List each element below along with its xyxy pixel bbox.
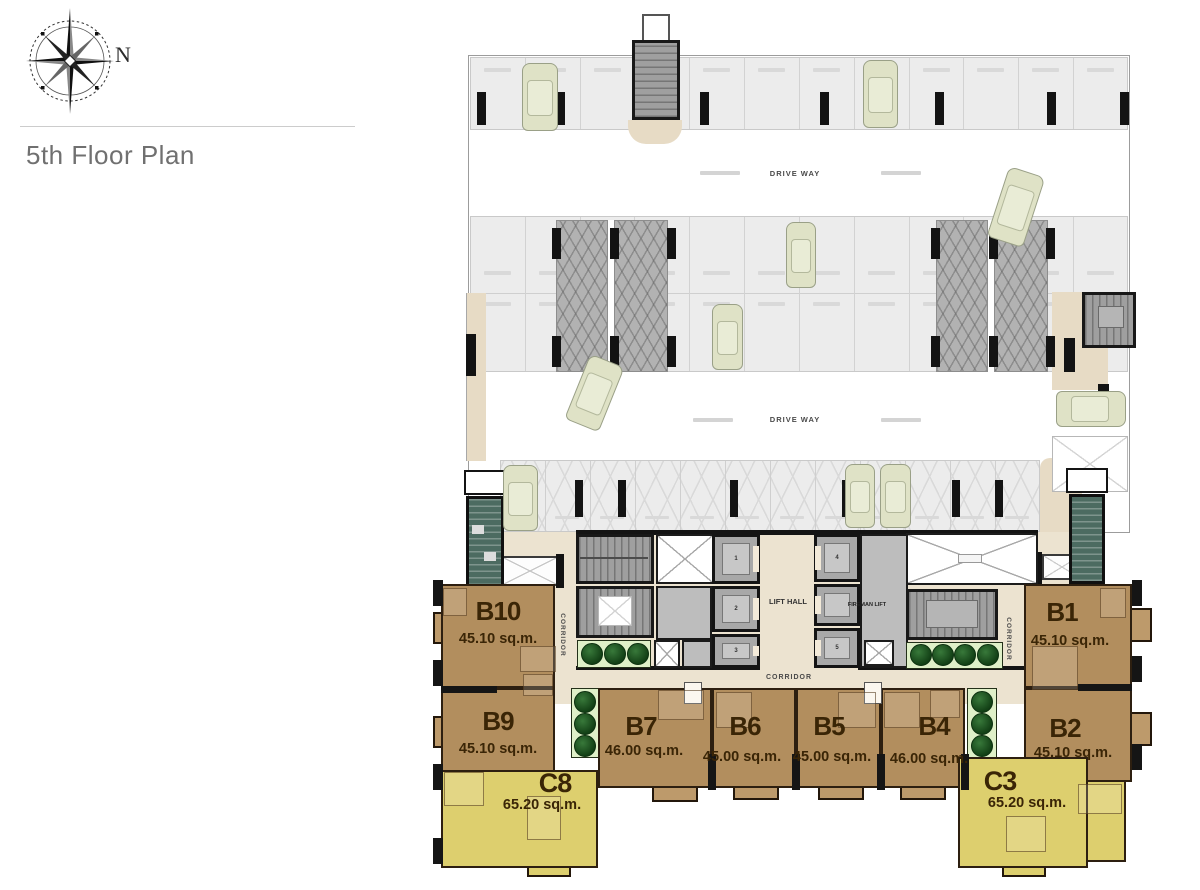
- unit-name: B2: [1025, 714, 1105, 742]
- stall-mark: [758, 302, 785, 306]
- column: [552, 228, 561, 259]
- shaft: [864, 640, 894, 666]
- parking-ramp: [614, 220, 668, 372]
- car: [880, 464, 911, 528]
- stall-mark: [594, 68, 621, 72]
- car-roof: [1071, 396, 1109, 422]
- car-roof: [717, 321, 738, 355]
- furniture: [444, 772, 484, 806]
- car: [845, 464, 875, 528]
- unit-area: 65.20 sq.m.: [488, 796, 596, 813]
- unit-name: B5: [790, 712, 868, 740]
- parking-ramp: [936, 220, 988, 372]
- stall-mark: [868, 271, 895, 275]
- stall-mark: [813, 68, 840, 72]
- stall-mark: [484, 302, 511, 306]
- fireman-lift-label: FIREMAN LIFT: [847, 592, 887, 618]
- lift-door: [753, 646, 759, 656]
- column: [935, 92, 944, 125]
- column: [552, 336, 561, 367]
- floor-plan: 12345B1045.10 sq.m.B945.10 sq.m.C865.20 …: [0, 0, 1200, 890]
- unit-name: C3: [968, 766, 1032, 796]
- lift-cab: 2: [722, 595, 750, 623]
- unit-area: 65.20 sq.m.: [974, 794, 1080, 811]
- column: [667, 228, 676, 259]
- furniture: [1100, 588, 1126, 618]
- door-jamb: [556, 554, 564, 588]
- car-roof: [508, 482, 533, 516]
- stall-divider: [854, 217, 855, 371]
- stair-core: [926, 600, 978, 628]
- lift-door: [815, 640, 821, 656]
- stall-divider: [1073, 58, 1074, 129]
- tree: [971, 713, 993, 735]
- lift-cab: 4: [824, 543, 850, 573]
- column: [1047, 92, 1056, 125]
- unit-name: B7: [602, 712, 680, 740]
- furniture: [523, 674, 553, 696]
- column: [820, 92, 829, 125]
- stall-divider: [909, 58, 910, 129]
- column: [477, 92, 486, 125]
- tree: [971, 691, 993, 713]
- corridor-label-left: CORRIDOR: [557, 596, 568, 674]
- column: [952, 480, 960, 517]
- stall-mark: [484, 271, 511, 275]
- fire-stair-left: [466, 496, 504, 588]
- stall-mark: [923, 68, 950, 72]
- tree: [910, 644, 932, 666]
- unit-area: 45.10 sq.m.: [1022, 744, 1124, 761]
- stair-landing: [484, 552, 496, 561]
- stall-mark: [690, 516, 714, 519]
- column: [1064, 338, 1075, 372]
- car: [522, 63, 558, 131]
- tree: [574, 691, 596, 713]
- stall-mark: [735, 516, 759, 519]
- wall-tick: [433, 838, 443, 864]
- stall-mark: [703, 68, 730, 72]
- shaft: [654, 640, 680, 668]
- column: [1120, 92, 1129, 125]
- service-room: [656, 586, 712, 640]
- stall-divider: [744, 58, 745, 129]
- driveway-label-mid: DRIVE WAY: [755, 413, 835, 425]
- wall-tick: [433, 660, 443, 686]
- entry-mat: [502, 556, 558, 586]
- stairwell-top: [632, 40, 680, 120]
- unit-area: 45.10 sq.m.: [1020, 632, 1120, 649]
- unit-area: 45.00 sq.m.: [697, 748, 787, 765]
- wall-tick: [433, 764, 443, 790]
- lift-door: [815, 546, 821, 570]
- stall-mark: [960, 516, 984, 519]
- unit-area: 45.10 sq.m.: [441, 630, 555, 647]
- tree: [932, 644, 954, 666]
- stair-landing: [472, 525, 484, 534]
- shaft: [598, 596, 632, 626]
- lift-cab: 5: [824, 637, 850, 659]
- corridor-label-right: CORRIDOR: [1003, 600, 1014, 678]
- furniture: [1078, 784, 1122, 814]
- column: [931, 228, 940, 259]
- stair-cap: [642, 14, 670, 42]
- column: [730, 480, 738, 517]
- stall-divider: [580, 58, 581, 129]
- stall-mark: [868, 302, 895, 306]
- wall-tick: [1132, 744, 1142, 770]
- lift-hall-label: LIFT HALL: [760, 595, 816, 608]
- car: [786, 222, 816, 288]
- stall-mark: [645, 516, 669, 519]
- car-roof: [885, 481, 906, 513]
- stall-mark: [758, 271, 785, 275]
- furniture: [520, 646, 556, 672]
- unit-name: C8: [520, 768, 590, 798]
- unit-area: 46.00 sq.m.: [882, 750, 976, 767]
- stall-divider: [689, 217, 690, 371]
- unit-name: B9: [444, 706, 552, 736]
- column: [618, 480, 626, 517]
- car-roof: [527, 80, 553, 116]
- wall-strip: [466, 293, 486, 461]
- stair-cap: [464, 470, 506, 495]
- car: [1056, 391, 1126, 427]
- unit-name: B1: [1022, 598, 1102, 626]
- fire-stair-right: [1069, 494, 1105, 584]
- lift-door: [753, 546, 759, 572]
- tree: [574, 713, 596, 735]
- column: [1046, 228, 1055, 259]
- car-roof: [791, 239, 811, 273]
- column: [610, 228, 619, 259]
- unit-area: 46.00 sq.m.: [594, 742, 694, 759]
- stall-mark: [703, 271, 730, 275]
- unit-name: B6: [706, 712, 784, 740]
- driveway-label-top: DRIVE WAY: [755, 167, 835, 179]
- service-room: [682, 640, 712, 668]
- column: [995, 480, 1003, 517]
- party-wall: [1078, 684, 1132, 691]
- core-stair-a: [576, 534, 654, 584]
- tree: [574, 735, 596, 757]
- stall-divider: [909, 217, 910, 371]
- party-wall: [441, 686, 497, 693]
- tree: [604, 643, 626, 665]
- stall-divider: [854, 58, 855, 129]
- furniture: [1006, 816, 1046, 852]
- dimension-mark: [693, 418, 733, 422]
- column: [931, 336, 940, 367]
- furniture: [1032, 646, 1078, 690]
- lift-door: [753, 598, 759, 620]
- unit-name: B4: [894, 712, 974, 740]
- column: [667, 336, 676, 367]
- wall-tick: [1132, 580, 1142, 606]
- column: [575, 480, 583, 517]
- tree: [581, 643, 603, 665]
- lift-cab: 3: [722, 643, 750, 659]
- column: [700, 92, 709, 125]
- column: [1046, 336, 1055, 367]
- tree: [977, 644, 999, 666]
- stall-divider: [799, 58, 800, 129]
- balcony: [652, 786, 698, 802]
- unit-area: 45.10 sq.m.: [441, 740, 555, 757]
- parking-ramp: [556, 220, 608, 372]
- car-roof: [868, 77, 893, 113]
- stair-cap: [1066, 468, 1108, 493]
- wall-tick: [1132, 656, 1142, 682]
- stall-mark: [915, 516, 939, 519]
- balcony: [1130, 608, 1152, 642]
- shaft-mark: [958, 554, 982, 563]
- stall-mark: [1087, 68, 1114, 72]
- unit-area: 45.00 sq.m.: [786, 748, 878, 765]
- car: [503, 465, 538, 531]
- dimension-mark: [881, 418, 921, 422]
- stall-divider: [689, 58, 690, 129]
- stall-mark: [484, 68, 511, 72]
- stall-mark: [1005, 516, 1029, 519]
- lift-cab: 1: [722, 543, 750, 575]
- stall-divider: [525, 217, 526, 371]
- stall-mark: [1032, 68, 1059, 72]
- car: [863, 60, 898, 128]
- column: [989, 336, 998, 367]
- shaft-room: [656, 534, 714, 584]
- car-roof: [850, 481, 870, 513]
- unit-name: B10: [444, 596, 552, 626]
- stair-core: [1098, 306, 1124, 328]
- stair-apron: [628, 120, 682, 144]
- car-roof: [996, 184, 1036, 233]
- column: [466, 334, 476, 376]
- stall-divider: [744, 217, 745, 371]
- dimension-mark: [881, 171, 921, 175]
- stall-mark: [977, 68, 1004, 72]
- stall-mark: [780, 516, 804, 519]
- wall-tick: [433, 580, 443, 606]
- stair-rail: [580, 557, 648, 559]
- stall-mark: [1087, 271, 1114, 275]
- dimension-mark: [700, 171, 740, 175]
- stall-divider: [1018, 58, 1019, 129]
- stall-divider: [963, 58, 964, 129]
- balcony: [1130, 712, 1152, 746]
- corridor-label-horizontal: CORRIDOR: [756, 672, 822, 683]
- tree: [954, 644, 976, 666]
- car: [712, 304, 743, 370]
- stall-mark: [758, 68, 785, 72]
- stall-mark: [813, 271, 840, 275]
- tree: [627, 643, 649, 665]
- stall-mark: [813, 302, 840, 306]
